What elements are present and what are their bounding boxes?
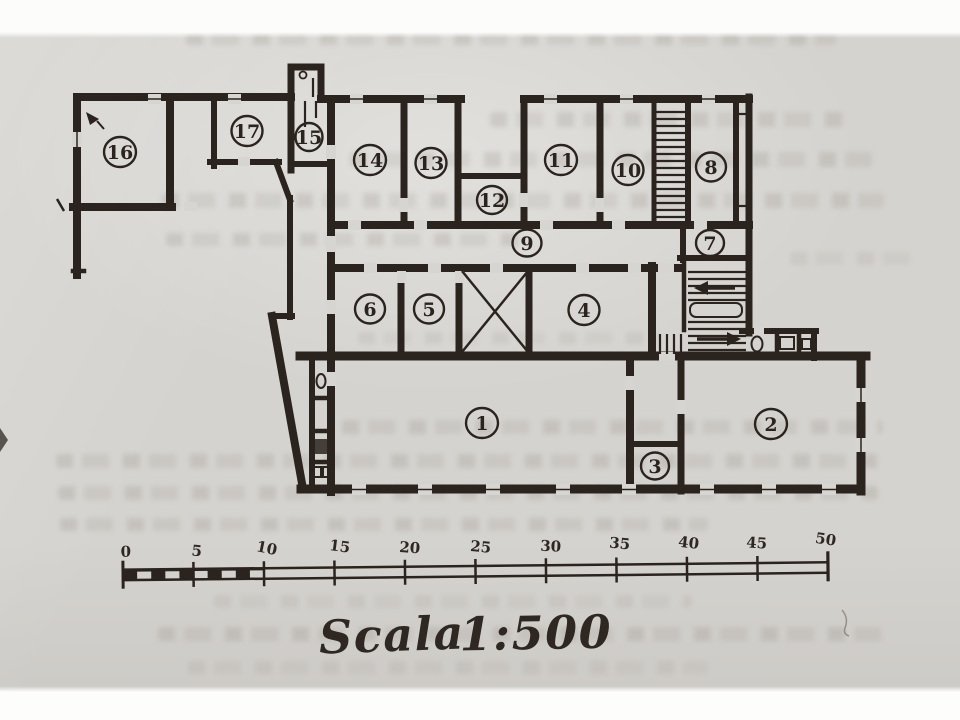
scale-tick-label: 45	[746, 533, 768, 552]
room-label-14: 14	[354, 145, 386, 175]
scale-tick-label: 20	[399, 538, 421, 558]
room-number: 4	[577, 300, 590, 322]
scale-tick-label: 35	[608, 534, 630, 554]
room-label-13: 13	[416, 148, 447, 178]
room-label-11: 11	[545, 145, 577, 175]
scale-tick-label: 25	[470, 537, 492, 557]
scale-tick-label: 10	[255, 537, 279, 559]
room-label-10: 10	[613, 155, 644, 185]
room-number: 1	[475, 413, 488, 435]
scale-tick-label: 30	[540, 537, 562, 556]
staircase-lower	[660, 272, 746, 354]
room-label-8: 8	[696, 153, 726, 182]
room-label-1: 1	[466, 408, 498, 438]
room-label-12: 12	[477, 186, 507, 214]
chimney-detail	[300, 72, 317, 128]
scanned-book-page: 1 2 3 4 5 6 7	[0, 0, 960, 720]
cross-marked-room	[462, 271, 528, 352]
room-number: 11	[548, 150, 574, 172]
room-number: 14	[357, 150, 383, 172]
room-label-4: 4	[569, 295, 600, 325]
scale-tick-label: 50	[814, 529, 837, 550]
room-label-5: 5	[414, 295, 444, 324]
entrance-arrow-icon	[86, 112, 104, 129]
room-label-16: 16	[104, 137, 136, 167]
annex-fixtures	[752, 337, 812, 352]
room-label-7: 7	[696, 230, 724, 256]
staircase-hatched-upper	[656, 112, 687, 217]
caption-ratio: 1:500	[459, 605, 612, 662]
room-number: 8	[704, 157, 717, 179]
scale-tick-label: 40	[677, 533, 700, 553]
scale-tick-label: 0	[120, 543, 131, 561]
scale-bar: 0 5 10 15 20 25 30 35 40 45 50	[120, 529, 837, 589]
scale-tick-label: 5	[191, 541, 203, 560]
room-number: 2	[764, 414, 777, 436]
room-number: 5	[422, 299, 435, 321]
room-number: 10	[615, 160, 641, 182]
room-label-15: 15	[296, 123, 323, 151]
room-label-2: 2	[755, 409, 787, 439]
room-number: 16	[107, 142, 133, 164]
room-label-6: 6	[355, 295, 385, 324]
room-label-9: 9	[513, 230, 542, 257]
room-number: 6	[363, 299, 376, 321]
caption: Scala 1:500	[318, 605, 613, 665]
room-number: 9	[520, 233, 533, 255]
caption-scala: Scala	[318, 605, 466, 664]
room-number: 12	[479, 190, 505, 212]
room-number: 15	[296, 127, 322, 149]
scale-tick-label: 15	[328, 536, 351, 557]
room-label-3: 3	[641, 453, 669, 480]
room-number: 7	[703, 233, 716, 255]
room-number: 13	[418, 153, 444, 175]
room-number: 3	[648, 456, 661, 478]
room-label-17: 17	[232, 116, 263, 146]
room-number: 17	[234, 121, 260, 143]
scale-tick-labels: 0 5 10 15 20 25 30 35 40 45 50	[120, 529, 837, 562]
floor-plan-drawing: 1 2 3 4 5 6 7	[0, 0, 960, 720]
